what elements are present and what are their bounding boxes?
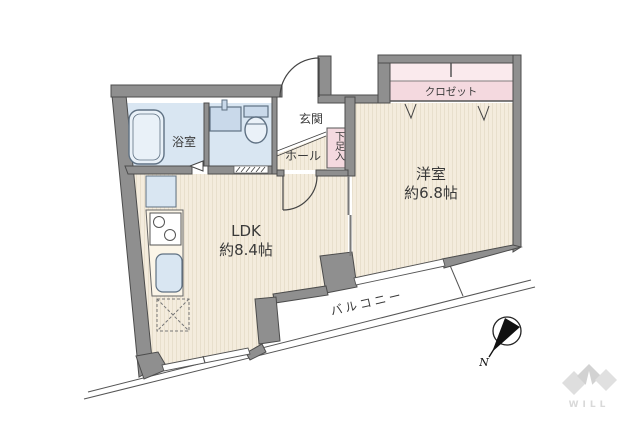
- wall-washroom-right: [272, 97, 277, 174]
- kitchen-stove: [150, 213, 181, 245]
- balcony-label: バルコニー: [329, 288, 405, 318]
- wall-entrance-right: [345, 97, 355, 176]
- logo-text: WILL: [569, 400, 610, 410]
- logo-diamond-right: [595, 369, 617, 391]
- ldk-label: LDK: [231, 222, 262, 240]
- wall-top: [111, 85, 282, 97]
- compass-needle-tail: [489, 349, 494, 357]
- compass-north-label: N: [478, 356, 489, 369]
- western-room-size: 約6.8帖: [404, 184, 458, 202]
- washbasin-tap: [222, 100, 227, 110]
- will-logo: WILL: [562, 364, 617, 410]
- hall-label: ホール: [285, 149, 321, 163]
- toilet-tank: [244, 106, 268, 117]
- wall-closet-top: [378, 55, 521, 63]
- wall-bathroom-bottom-1: [125, 166, 192, 174]
- washroom-door-hatch: [234, 166, 268, 173]
- closet-label: クロゼット: [425, 86, 478, 98]
- western-room-label: 洋室: [416, 165, 446, 183]
- washing-machine-pan: [146, 176, 176, 207]
- floor-plan: 浴室 玄関 ホール 下足入 クロゼット 洋室 約6.8帖 LDK 約8.4帖 バ…: [0, 0, 640, 427]
- balcony-divider: [449, 263, 463, 296]
- bathtub: [129, 110, 164, 164]
- floor-plan-page: 浴室 玄関 ホール 下足入 クロゼット 洋室 約6.8帖 LDK 約8.4帖 バ…: [0, 0, 640, 427]
- entrance-label: 玄関: [299, 111, 323, 126]
- ldk-size: 約8.4帖: [219, 241, 273, 259]
- front-door-swing: [280, 58, 319, 97]
- compass: N: [478, 317, 521, 369]
- washbasin: [210, 107, 241, 131]
- bathroom-label: 浴室: [172, 134, 196, 149]
- wall-hall-bottom-2: [316, 170, 348, 176]
- shoe-cabinet-label: 下足入: [333, 131, 345, 161]
- toilet-bowl: [245, 117, 267, 143]
- wall-hall-bottom-1: [277, 170, 284, 176]
- kitchen-sink: [156, 254, 182, 292]
- wall-bath-divider: [204, 103, 209, 166]
- wall-balcony-end: [255, 297, 280, 344]
- wall-right: [513, 55, 521, 252]
- wall-door-stub: [318, 56, 331, 97]
